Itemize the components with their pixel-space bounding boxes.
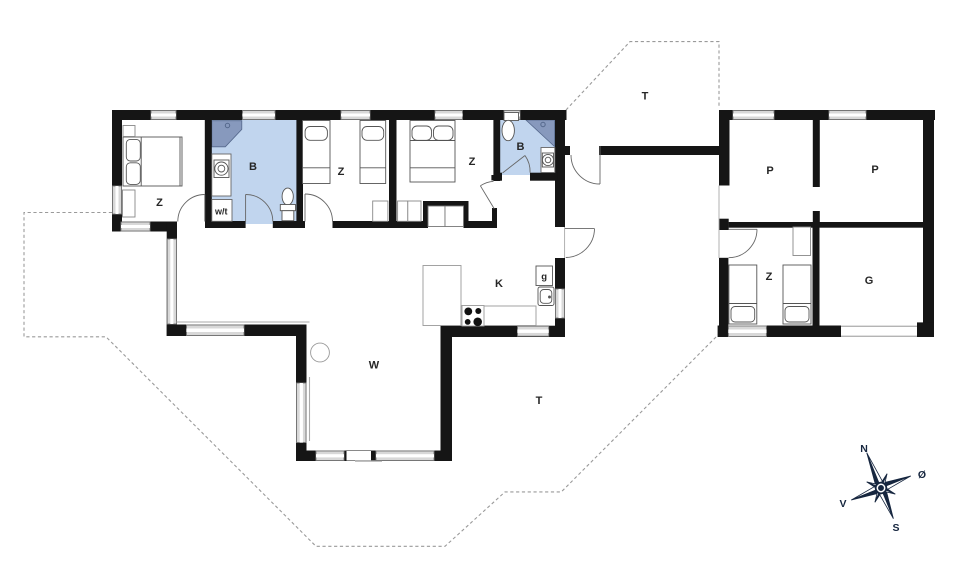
svg-text:T: T [536,395,543,407]
svg-text:Z: Z [469,156,476,168]
svg-text:G: G [865,275,874,287]
svg-text:P: P [766,165,773,177]
svg-text:V: V [839,498,846,510]
svg-text:P: P [871,164,878,176]
svg-text:Z: Z [156,197,163,209]
svg-text:K: K [495,278,503,290]
svg-text:Ø: Ø [918,469,926,481]
svg-text:g: g [541,272,547,283]
svg-text:N: N [860,443,868,455]
svg-text:Z: Z [766,271,773,283]
svg-text:Z: Z [338,166,345,178]
svg-text:w/t: w/t [214,207,228,217]
svg-text:W: W [369,360,380,372]
svg-text:B: B [517,141,525,153]
svg-text:S: S [892,522,899,534]
svg-text:T: T [642,91,649,103]
svg-text:B: B [249,161,257,173]
